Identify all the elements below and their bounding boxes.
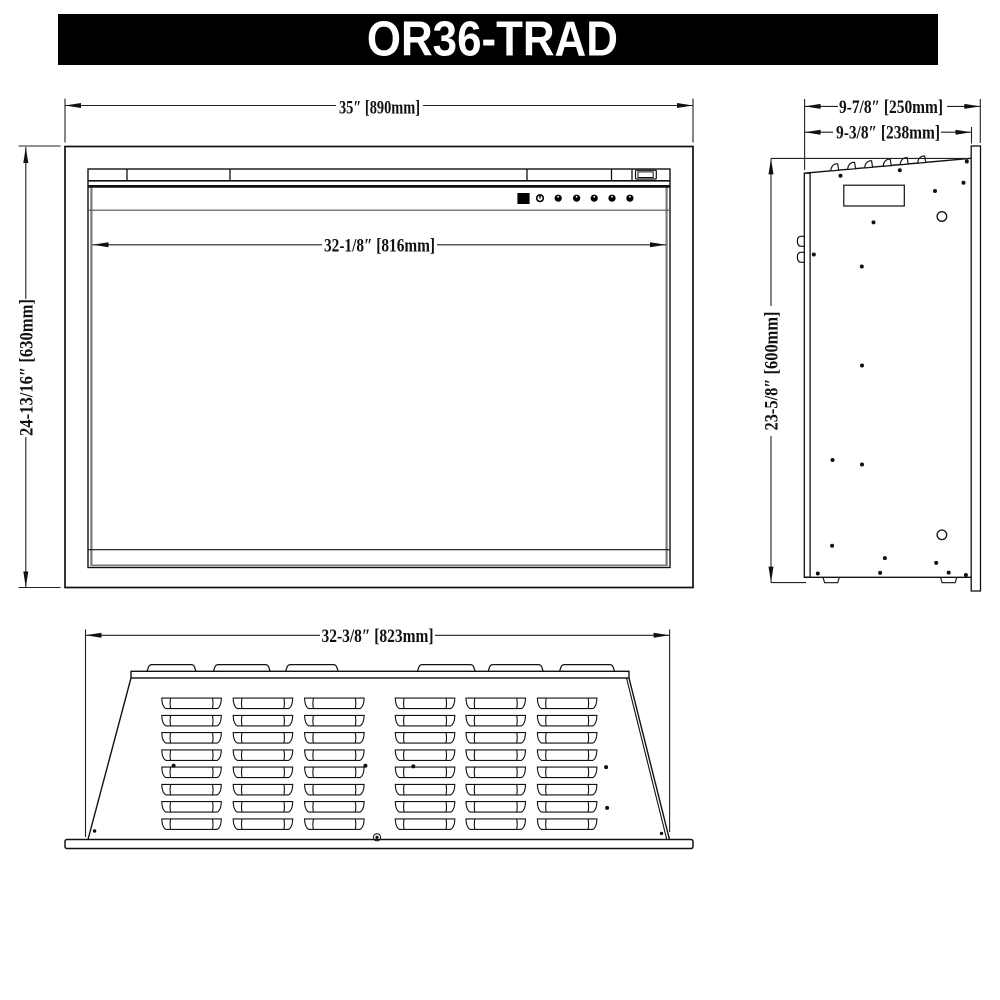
- svg-text:23-5/8″ [600mm]: 23-5/8″ [600mm]: [762, 312, 783, 431]
- svg-text:32-3/8″ [823mm]: 32-3/8″ [823mm]: [322, 626, 434, 647]
- svg-text:OR36-TRAD: OR36-TRAD: [367, 12, 618, 67]
- svg-text:32-1/8″ [816mm]: 32-1/8″ [816mm]: [324, 235, 435, 256]
- svg-text:35″ [890mm]: 35″ [890mm]: [339, 98, 420, 119]
- svg-text:24-13/16″ [630mm]: 24-13/16″ [630mm]: [17, 299, 38, 436]
- svg-text:9-7/8″ [250mm]: 9-7/8″ [250mm]: [839, 97, 943, 118]
- svg-text:9-3/8″ [238mm]: 9-3/8″ [238mm]: [836, 123, 940, 144]
